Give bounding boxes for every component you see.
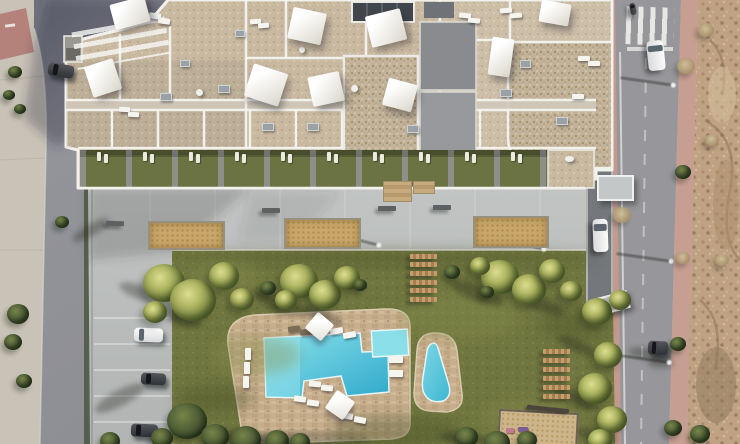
palm-tree xyxy=(578,373,612,404)
dry-shrub xyxy=(677,58,695,74)
palm-tree xyxy=(594,342,622,368)
shrub xyxy=(444,265,460,279)
play-equipment xyxy=(506,428,514,433)
ac-unit xyxy=(520,60,531,68)
sun-lounger xyxy=(468,17,480,23)
palm-tree xyxy=(143,301,167,323)
sun-lounger xyxy=(294,395,307,403)
lamp-post-shadow xyxy=(616,252,672,263)
shrub xyxy=(55,216,69,228)
palm-tree xyxy=(275,290,297,310)
shade-sail xyxy=(244,63,289,106)
shrub xyxy=(231,426,261,444)
wooden-step-plank xyxy=(410,262,437,267)
ac-unit xyxy=(160,93,172,101)
planter-sandbox xyxy=(148,221,225,250)
bench xyxy=(262,208,280,213)
sun-lounger xyxy=(309,380,321,387)
shrub xyxy=(14,104,26,114)
dry-shrub xyxy=(715,254,729,266)
sun-lounger xyxy=(243,376,249,388)
aerial-site-plan-render xyxy=(0,0,740,444)
dark-car xyxy=(629,3,637,16)
garden-lounger xyxy=(281,152,285,161)
garden-lounger xyxy=(97,152,101,161)
garden-lounger xyxy=(426,154,430,163)
shrub xyxy=(265,430,289,444)
shrub xyxy=(670,337,686,351)
garden-lounger xyxy=(288,154,292,163)
garden-lounger xyxy=(511,152,515,161)
wooden-step-plank xyxy=(410,288,437,293)
terrace-table xyxy=(351,85,358,92)
shrub xyxy=(690,425,710,443)
palm-tree xyxy=(560,281,582,301)
entrance-mat xyxy=(383,181,412,202)
palm-tree xyxy=(588,429,612,444)
shrub xyxy=(456,427,478,444)
wooden-step-plank xyxy=(543,349,570,354)
palm-tree xyxy=(230,288,254,310)
planter-sandbox xyxy=(473,216,549,248)
ac-unit xyxy=(556,117,568,125)
wooden-step-plank xyxy=(543,358,570,363)
garden-lounger xyxy=(150,154,154,163)
bench xyxy=(106,221,124,227)
shrub xyxy=(4,334,22,350)
sun-lounger xyxy=(244,362,250,374)
white-car xyxy=(646,40,666,72)
palm-tree xyxy=(170,279,216,321)
wooden-step-plank xyxy=(543,385,570,390)
dark-car xyxy=(141,372,167,385)
lamp-post-shadow xyxy=(620,76,674,86)
ac-unit xyxy=(407,125,419,133)
white-car xyxy=(134,327,163,342)
sun-lounger-dark xyxy=(288,325,301,333)
palm-tree xyxy=(470,257,490,275)
shade-sail xyxy=(365,8,408,48)
garden-lounger xyxy=(104,154,108,163)
shade-sail xyxy=(382,78,418,113)
shrub xyxy=(100,432,120,444)
sun-lounger xyxy=(307,399,320,407)
dry-shrub xyxy=(705,134,719,146)
sun-lounger xyxy=(343,331,357,339)
shrub xyxy=(16,374,32,388)
garden-lounger xyxy=(143,152,147,161)
sun-lounger xyxy=(510,13,522,19)
shrub xyxy=(151,428,173,444)
dry-shrub xyxy=(613,207,631,223)
entrance-canopy xyxy=(597,175,634,201)
shrub xyxy=(260,281,276,295)
terrace-table xyxy=(565,156,574,162)
ac-unit xyxy=(218,85,230,93)
garden-lounger xyxy=(518,154,522,163)
dark-car xyxy=(47,62,75,79)
wooden-step-plank xyxy=(543,394,570,399)
shrub xyxy=(3,90,15,100)
terrace-table xyxy=(196,89,203,96)
sun-lounger xyxy=(389,370,403,377)
shrub xyxy=(480,286,494,298)
wooden-step-plank xyxy=(410,271,437,276)
scene-objects-layer xyxy=(0,0,740,444)
wooden-step-plank xyxy=(543,376,570,381)
palm-tree xyxy=(539,259,565,283)
garden-lounger xyxy=(373,152,377,161)
garden-lounger xyxy=(235,152,239,161)
wooden-step-plank xyxy=(410,297,437,302)
garden-lounger xyxy=(327,152,331,161)
garden-lounger xyxy=(465,152,469,161)
planter-sandbox xyxy=(284,218,361,249)
palm-tree xyxy=(582,298,612,325)
shrub xyxy=(675,165,691,179)
shrub xyxy=(290,433,310,444)
wooden-step-plank xyxy=(410,254,437,259)
wooden-step-plank xyxy=(410,280,437,285)
entrance-mat xyxy=(413,181,435,194)
shade-sail xyxy=(307,71,345,107)
dry-shrub xyxy=(676,252,690,264)
ac-unit xyxy=(180,60,190,67)
palm-tree xyxy=(209,262,239,290)
white-car xyxy=(592,219,608,253)
sun-lounger xyxy=(258,23,269,29)
sun-lounger xyxy=(128,112,139,118)
dry-shrub xyxy=(698,23,714,37)
shade-sail xyxy=(287,7,327,45)
garden-lounger xyxy=(196,154,200,163)
bench xyxy=(378,206,396,211)
palm-tree xyxy=(609,290,631,310)
shrub xyxy=(353,279,367,291)
garden-lounger xyxy=(472,154,476,163)
sun-lounger xyxy=(245,348,251,360)
garden-lounger xyxy=(380,154,384,163)
shrub xyxy=(201,424,229,444)
garden-lounger xyxy=(419,152,423,161)
shrub xyxy=(517,431,537,444)
garden-lounger xyxy=(242,154,246,163)
sun-lounger xyxy=(572,94,584,99)
shrub xyxy=(8,66,22,78)
sun-lounger xyxy=(389,356,403,363)
shade-sail xyxy=(487,37,514,78)
shrub xyxy=(7,304,29,324)
sun-lounger xyxy=(588,61,600,66)
terrace-table xyxy=(299,47,305,53)
cast-shadow xyxy=(92,378,149,418)
ac-unit xyxy=(500,89,512,97)
ac-unit xyxy=(307,123,319,131)
bench xyxy=(433,205,451,210)
garden-lounger xyxy=(334,154,338,163)
garden-lounger xyxy=(189,152,193,161)
cast-shadow xyxy=(70,214,112,245)
shrub xyxy=(664,420,682,436)
grass-light-patch xyxy=(210,335,300,375)
ac-unit xyxy=(235,30,245,37)
shade-sail xyxy=(538,0,571,26)
ac-unit xyxy=(262,123,274,131)
sun-lounger xyxy=(321,384,333,391)
wooden-step-plank xyxy=(543,367,570,372)
palm-tree xyxy=(512,274,546,305)
dark-car xyxy=(648,340,669,355)
